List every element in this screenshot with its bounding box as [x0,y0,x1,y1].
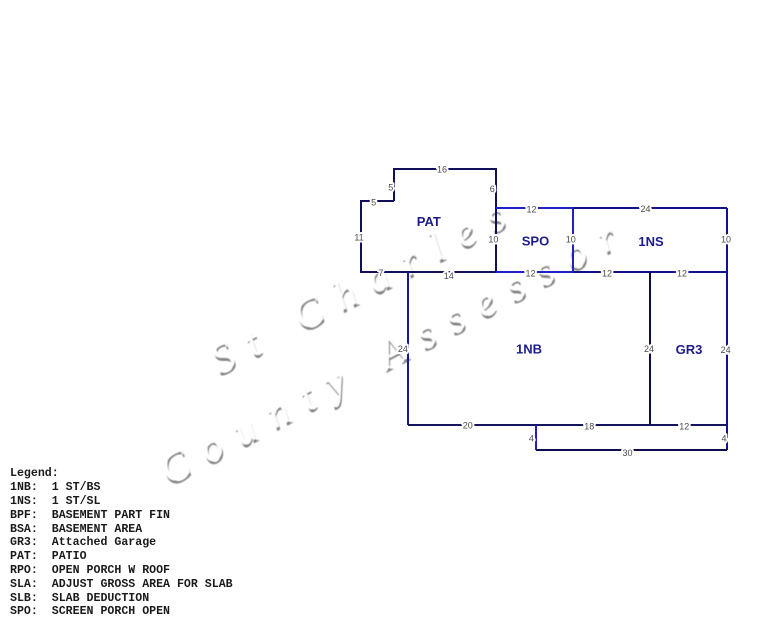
svg-text:12: 12 [602,268,612,278]
svg-text:1NS: 1NS [638,234,664,249]
svg-text:PAT: PAT [417,214,441,229]
svg-text:16: 16 [437,165,447,175]
svg-text:1NS: 1 ST/SL: 1NS: 1 ST/SL [10,495,100,508]
svg-text:12: 12 [679,422,689,432]
svg-text:5: 5 [371,198,376,208]
svg-text:GR3: Attached Garage: GR3: Attached Garage [10,536,156,549]
svg-text:Legend:: Legend: [10,467,59,480]
svg-text:1NB: 1 ST/BS: 1NB: 1 ST/BS [10,481,100,494]
svg-text:24: 24 [398,344,408,354]
svg-text:14: 14 [444,271,454,281]
svg-text:SLA: ADJUST GROSS AREA FOR SL: SLA: ADJUST GROSS AREA FOR SLAB [10,578,233,591]
svg-text:5: 5 [388,182,393,192]
svg-text:30: 30 [622,448,632,458]
svg-text:24: 24 [640,204,650,214]
svg-text:10: 10 [488,235,498,245]
svg-text:BPF: BASEMENT PART FIN: BPF: BASEMENT PART FIN [10,509,170,522]
svg-text:PAT: PATIO: PAT: PATIO [10,550,87,563]
svg-text:24: 24 [644,344,654,354]
svg-text:12: 12 [677,268,687,278]
svg-text:BSA: BASEMENT AREA: BSA: BASEMENT AREA [10,523,142,536]
svg-text:12: 12 [525,269,535,279]
svg-text:6: 6 [490,184,495,194]
svg-text:SPO: SCREEN PORCH OPEN: SPO: SCREEN PORCH OPEN [10,605,170,618]
svg-text:4: 4 [721,434,726,444]
svg-text:20: 20 [463,421,473,431]
svg-text:4: 4 [529,434,534,444]
svg-text:SLB: SLAB DEDUCTION: SLB: SLAB DEDUCTION [10,592,149,605]
svg-text:10: 10 [721,234,731,244]
svg-text:11: 11 [354,232,363,242]
svg-text:RPO: OPEN PORCH W ROOF: RPO: OPEN PORCH W ROOF [10,564,170,577]
svg-text:SPO: SPO [522,234,549,249]
svg-text:1NB: 1NB [516,342,542,357]
svg-text:24: 24 [721,345,731,355]
svg-text:GR3: GR3 [676,342,703,357]
svg-text:7: 7 [378,268,383,278]
svg-text:10: 10 [566,235,576,245]
svg-text:12: 12 [526,204,536,214]
svg-text:18: 18 [584,422,594,432]
